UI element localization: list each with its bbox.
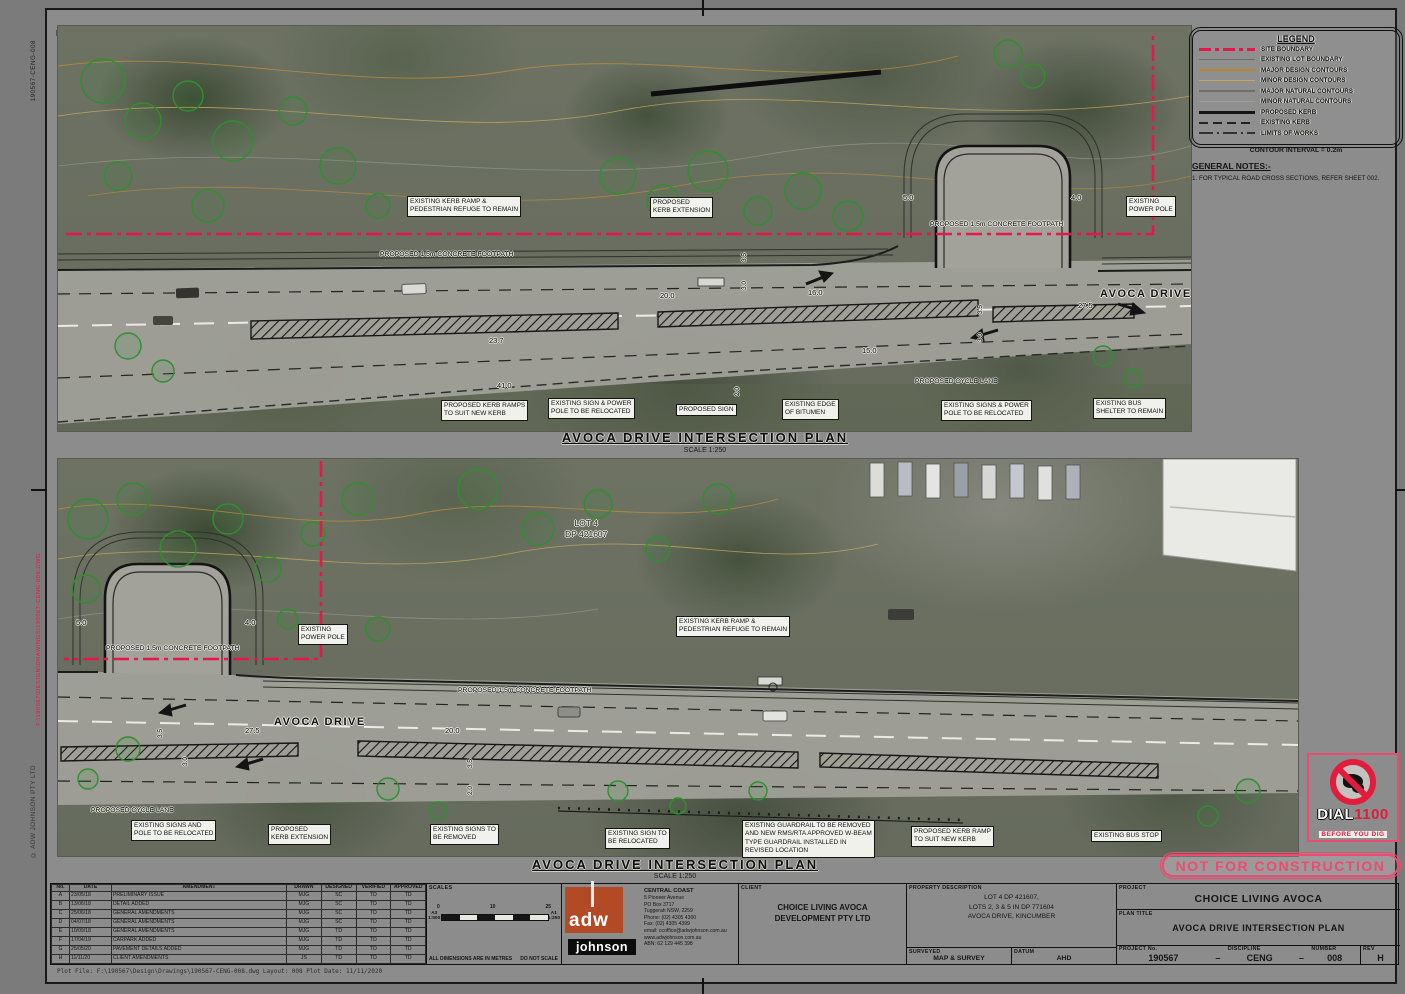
plot-stamp-vertical-text: F:\190567\DESIGN\DRAWINGS\190567-CENG-00… (36, 553, 42, 726)
legend-label: MAJOR NATURAL CONTOURS (1261, 88, 1353, 95)
top-fold-mark (702, 0, 704, 16)
consultant-address: CENTRAL COAST 5 Pioneer Avenue PO Box 37… (644, 887, 727, 961)
revision-header-row: No.DATEAMENDMENTDRAWNDESIGNEDVERIFIEDAPP… (52, 885, 426, 892)
revision-row: E10/09/18GENERAL AMENDMENTSMJGTDTDTD (52, 927, 426, 936)
datum-cell: DATUM AHD (1011, 948, 1116, 964)
sheet-number-cell: NUMBER 008 (1309, 946, 1360, 964)
project-name: CHOICE LIVING AVOCA (1117, 884, 1400, 905)
not-for-construction-stamp: NOT FOR CONSTRUCTION (1162, 854, 1399, 877)
legend-item: EXISTING KERB (1199, 118, 1393, 129)
bottom-fold-mark (702, 978, 704, 994)
scale-bar (441, 914, 549, 921)
lot-boundary-line-icon (1199, 59, 1255, 60)
dimensions-note: ALL DIMENSIONS ARE IN METRES (429, 956, 512, 962)
legend-label: LIMITS OF WORKS (1261, 130, 1318, 137)
revision-column-header: VERIFIED (356, 885, 391, 892)
revision-column-header: DATE (70, 885, 112, 892)
legend-item: EXISTING LOT BOUNDARY (1199, 55, 1393, 66)
right-fold-mark (1395, 489, 1405, 491)
general-notes: GENERAL NOTES:- 1. FOR TYPICAL ROAD CROS… (1192, 161, 1398, 183)
legend-item: PROPOSED KERB (1199, 107, 1393, 118)
client-name: CHOICE LIVING AVOCA DEVELOPMENT PTY LTD (739, 902, 906, 924)
legend-items: SITE BOUNDARYEXISTING LOT BOUNDARYMAJOR … (1199, 44, 1393, 139)
scale-tick: 10 (490, 904, 496, 910)
surveyed-label: SURVEYED (909, 949, 940, 955)
legend-label: MAJOR DESIGN CONTOURS (1261, 67, 1347, 74)
sheet-number: 008 (1309, 953, 1360, 963)
existing-kerb-line-icon (1199, 122, 1255, 124)
legend-label: EXISTING KERB (1261, 119, 1310, 126)
proposed-kerb-line-icon (1199, 111, 1255, 114)
legend-label: SITE BOUNDARY (1261, 46, 1313, 53)
project-number-cell: PROJECT No. 190567 (1117, 946, 1210, 964)
revision-column-header: DRAWN (287, 885, 322, 892)
adw-johnson-logo: adw (565, 887, 623, 933)
revision-column-header: AMENDMENT (112, 885, 287, 892)
upper-plan-linework (58, 26, 1191, 431)
revision-row: F17/04/19CARPARK ADDEDMJGTDTDTD (52, 936, 426, 945)
revision-cell: REV H (1360, 946, 1400, 964)
scale-tick: 0 (437, 904, 440, 910)
revision-rows: A23/05/18PRELIMINARY ISSUEMJGSCTDTDB13/0… (52, 891, 426, 963)
discipline-cell: DISCIPLINE CENG (1226, 946, 1294, 964)
surveyed-value: MAP & SURVEY (907, 955, 1011, 962)
legend-label: MINOR NATURAL CONTOURS (1261, 98, 1351, 105)
legend-item: MINOR NATURAL CONTOURS (1199, 97, 1393, 108)
lower-plan-linework (58, 459, 1298, 856)
legend-label: PROPOSED KERB (1261, 109, 1316, 116)
datum-label: DATUM (1014, 949, 1034, 955)
property-description: LOT 4 DP 421607, LOTS 2, 3 & 5 IN DP 771… (907, 893, 1116, 922)
left-fold-mark (31, 489, 47, 491)
title-block: No.DATEAMENDMENTDRAWNDESIGNEDVERIFIEDAPP… (50, 883, 1399, 965)
revision-column-header: No. (52, 885, 70, 892)
major-design-contour-line-icon (1199, 69, 1255, 71)
drawing-reference-vertical-text: 190567-CENG-008 (30, 40, 37, 101)
dial-tagline: BEFORE YOU DIG (1319, 831, 1386, 838)
plan-title-label: PLAN TITLE (1119, 911, 1153, 917)
lower-intersection-plan-view (57, 458, 1299, 857)
upper-plan-subtitle: SCALE 1:250 (470, 447, 940, 454)
revision-table: No.DATEAMENDMENTDRAWNDESIGNEDVERIFIEDAPP… (51, 884, 426, 964)
no-dig-icon (1330, 759, 1376, 805)
discipline-code: CENG (1226, 953, 1294, 963)
consultant-cell: adw johnson CENTRAL COAST 5 Pioneer Aven… (561, 884, 738, 964)
limits-of-works-line-icon (1199, 132, 1255, 134)
revision-row: G25/05/20PAVEMENT DETAILS ADDEDMJGTDTDTD (52, 945, 426, 954)
copyright-vertical-text: © ADW JOHNSON PTY LTD (30, 765, 37, 858)
minor-design-contour-line-icon (1199, 80, 1255, 81)
drawing-sheet: 190567-CENG-008 F:\190567\DESIGN\DRAWING… (0, 0, 1405, 994)
revision-row: A23/05/18PRELIMINARY ISSUEMJGSCTDTD (52, 891, 426, 900)
client-label: CLIENT (741, 885, 762, 891)
legend-label: MINOR DESIGN CONTOURS (1261, 77, 1346, 84)
project-cell: PROJECT CHOICE LIVING AVOCA PLAN TITLE A… (1116, 884, 1400, 964)
scales-cell: SCALES 0 10 25 A3 1:500 A1 1:250 ALL DIM… (426, 884, 561, 964)
legend-item: MAJOR DESIGN CONTOURS (1199, 65, 1393, 76)
do-not-scale-note: DO NOT SCALE (520, 956, 558, 962)
revision-row: B13/06/18DETAIL ADDEDMJGSCTDTD (52, 900, 426, 909)
project-label: PROJECT (1119, 885, 1146, 891)
upper-plan-title: AVOCA DRIVE INTERSECTION PLAN (470, 430, 940, 445)
datum-value: AHD (1012, 955, 1116, 962)
legend-label: EXISTING LOT BOUNDARY (1261, 56, 1343, 63)
upper-intersection-plan-view (57, 25, 1192, 432)
scale-tick: 25 (545, 904, 551, 910)
logo-adw-text: adw (569, 910, 609, 932)
dial-word: DIAL (1317, 806, 1354, 823)
lower-plan-subtitle: SCALE 1:250 (440, 873, 910, 880)
legend-item: LIMITS OF WORKS (1199, 128, 1393, 139)
legend-item: SITE BOUNDARY (1199, 44, 1393, 55)
scale-a1-label: A1 1:250 (548, 911, 560, 922)
lower-plan-title: AVOCA DRIVE INTERSECTION PLAN (440, 857, 910, 872)
client-cell: CLIENT CHOICE LIVING AVOCA DEVELOPMENT P… (738, 884, 906, 964)
dial-before-you-dig-stamp: DIAL1100 BEFORE YOU DIG (1307, 753, 1399, 842)
revision-letter: H (1361, 953, 1400, 963)
plan-title-value: AVOCA DRIVE INTERSECTION PLAN (1117, 910, 1400, 933)
plot-file-note: Plot File: F:\190567\Design\Drawings\190… (57, 968, 382, 975)
general-note: 1. FOR TYPICAL ROAD CROSS SECTIONS, REFE… (1192, 175, 1398, 183)
revision-column-header: DESIGNED (321, 885, 356, 892)
revision-column-header: APPROVED (391, 885, 426, 892)
major-natural-contour-line-icon (1199, 90, 1255, 92)
legend-item: MINOR DESIGN CONTOURS (1199, 76, 1393, 87)
project-number: 190567 (1117, 953, 1210, 963)
site-boundary-line-icon (1199, 48, 1255, 51)
revision-row: C25/06/18GENERAL AMENDMENTSMJGSCTDTD (52, 909, 426, 918)
revision-row: H11/11/20CLIENT AMENDMENTSJSTDTDTD (52, 954, 426, 963)
minor-natural-contour-line-icon (1199, 101, 1255, 102)
legend: LEGEND SITE BOUNDARYEXISTING LOT BOUNDAR… (1192, 30, 1400, 145)
revision-row: D04/07/18GENERAL AMENDMENTSMJGSCTDTD (52, 918, 426, 927)
scales-label: SCALES (429, 885, 452, 891)
office-name: CENTRAL COAST (644, 888, 727, 895)
property-description-label: PROPERTY DESCRIPTION (909, 885, 982, 891)
logo-johnson-text: johnson (568, 939, 636, 955)
scale-a3-label: A3 1:500 (428, 911, 440, 922)
legend-title: LEGEND (1199, 34, 1393, 44)
surveyed-cell: SURVEYED MAP & SURVEY (907, 948, 1011, 964)
dial-number: 1100 (1354, 806, 1389, 823)
legend-item: MAJOR NATURAL CONTOURS (1199, 86, 1393, 97)
property-description-cell: PROPERTY DESCRIPTION LOT 4 DP 421607, LO… (906, 884, 1116, 964)
general-notes-title: GENERAL NOTES:- (1192, 161, 1398, 171)
contour-interval-note: CONTOUR INTERVAL = 0.2m (1192, 147, 1400, 154)
